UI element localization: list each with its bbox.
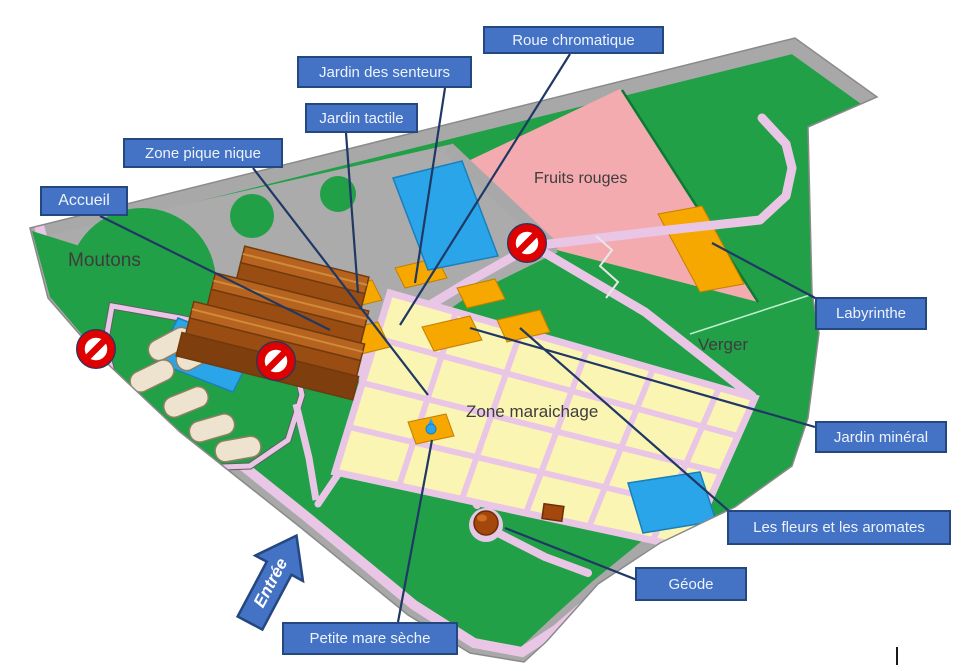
callout-geode: Géode xyxy=(635,567,747,601)
callout-jardin-mineral: Jardin minéral xyxy=(815,421,947,453)
callout-labyrinthe: Labyrinthe xyxy=(815,297,927,330)
lower-pool xyxy=(628,472,716,533)
map-text-verger: Verger xyxy=(698,335,748,355)
no-entry-icon xyxy=(77,330,115,368)
bush xyxy=(230,194,274,238)
callout-petite-mare-seche: Petite mare sèche xyxy=(282,622,458,655)
callout-les-fleurs-et-les-aromates: Les fleurs et les aromates xyxy=(727,510,951,545)
park-map-figure: Roue chromatique Jardin des senteurs Jar… xyxy=(0,0,970,671)
callout-roue-chromatique: Roue chromatique xyxy=(483,26,664,54)
callout-jardin-tactile: Jardin tactile xyxy=(305,103,418,133)
text-cursor-mark xyxy=(896,647,898,665)
park-map-drawing xyxy=(0,0,970,671)
no-entry-icon xyxy=(508,224,546,262)
callout-jardin-des-senteurs: Jardin des senteurs xyxy=(297,56,472,88)
shed-box xyxy=(542,504,564,522)
no-entry-icon xyxy=(257,342,295,380)
map-text-fruits-rouges: Fruits rouges xyxy=(534,170,627,188)
callout-accueil: Accueil xyxy=(40,186,128,216)
map-text-moutons: Moutons xyxy=(68,250,141,272)
map-text-zone-maraichage: Zone maraichage xyxy=(466,402,598,422)
geode-sphere xyxy=(469,508,503,542)
callout-zone-pique-nique: Zone pique nique xyxy=(123,138,283,168)
